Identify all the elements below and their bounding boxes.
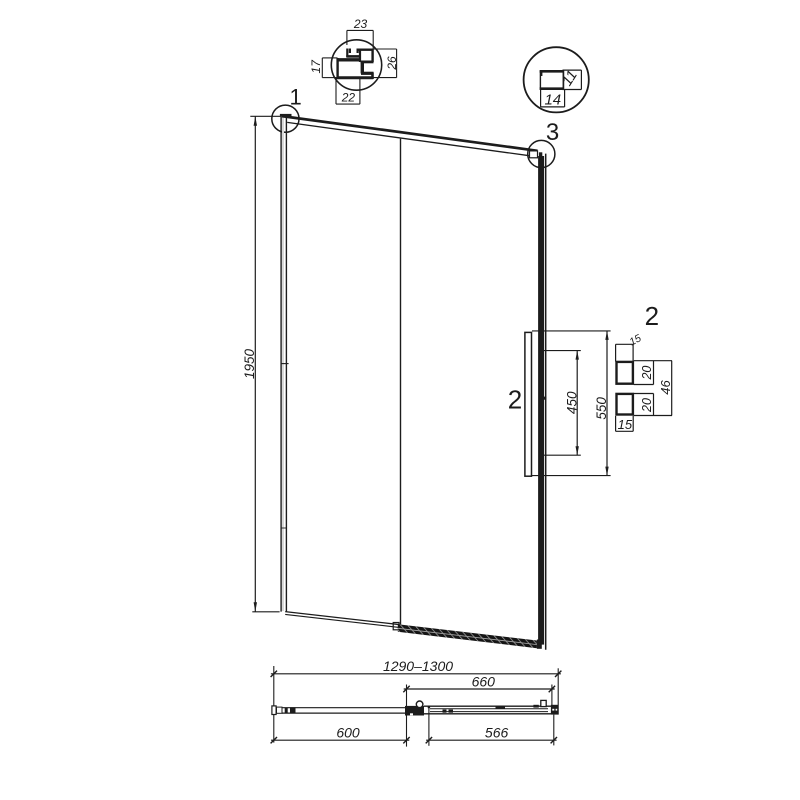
svg-text:15: 15 (618, 417, 633, 432)
svg-text:660: 660 (472, 673, 496, 689)
svg-text:22: 22 (341, 91, 356, 105)
svg-text:1: 1 (289, 84, 301, 109)
svg-text:450: 450 (564, 391, 579, 414)
svg-text:2: 2 (645, 301, 659, 331)
svg-text:26: 26 (385, 56, 399, 71)
svg-text:1950: 1950 (242, 348, 257, 379)
svg-text:566: 566 (485, 725, 509, 741)
svg-text:14: 14 (544, 92, 561, 109)
svg-text:550: 550 (594, 397, 609, 420)
svg-text:2: 2 (508, 385, 522, 415)
svg-text:20: 20 (640, 366, 654, 381)
svg-text:46: 46 (658, 380, 673, 395)
svg-text:600: 600 (336, 725, 360, 741)
svg-text:23: 23 (353, 17, 368, 31)
svg-text:1290–1300: 1290–1300 (383, 658, 453, 674)
svg-text:17: 17 (309, 59, 323, 74)
svg-text:20: 20 (640, 398, 654, 413)
